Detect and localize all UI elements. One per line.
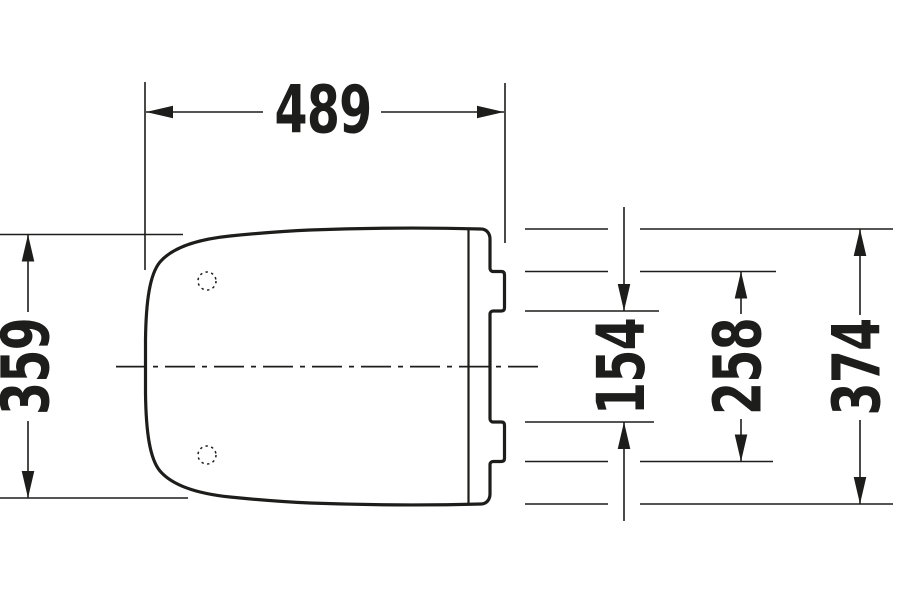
arrow-front-down: [22, 471, 35, 498]
arrow-tab-inner-up: [618, 422, 631, 449]
dim-label-hinge-outer: 258: [700, 318, 777, 415]
seat-dimension-drawing: 489 359 154 258 374: [0, 0, 900, 600]
hinge-hole-bottom: [198, 446, 216, 464]
extension-lines: [0, 82, 893, 504]
dim-label-hinge-inner: 154: [583, 318, 660, 415]
arrow-front-up: [22, 235, 35, 262]
seat-body: [116, 228, 540, 505]
arrow-tab-inner-down: [618, 284, 631, 311]
dim-label-overall-length: 489: [274, 72, 371, 149]
hinge-hole-top: [198, 272, 216, 290]
dimension-labels: 489 359 154 258 374: [0, 72, 896, 416]
arrow-back-up: [854, 229, 867, 256]
arrow-tab-outer-down: [735, 435, 748, 462]
arrow-tab-outer-up: [735, 272, 748, 299]
technical-drawing-canvas: 489 359 154 258 374: [0, 0, 900, 600]
arrow-back-down: [854, 477, 867, 504]
arrow-length-right: [477, 106, 504, 119]
dim-label-front-width: 359: [0, 318, 65, 415]
dim-label-overall-width: 374: [819, 318, 896, 415]
arrow-length-left: [146, 106, 173, 119]
